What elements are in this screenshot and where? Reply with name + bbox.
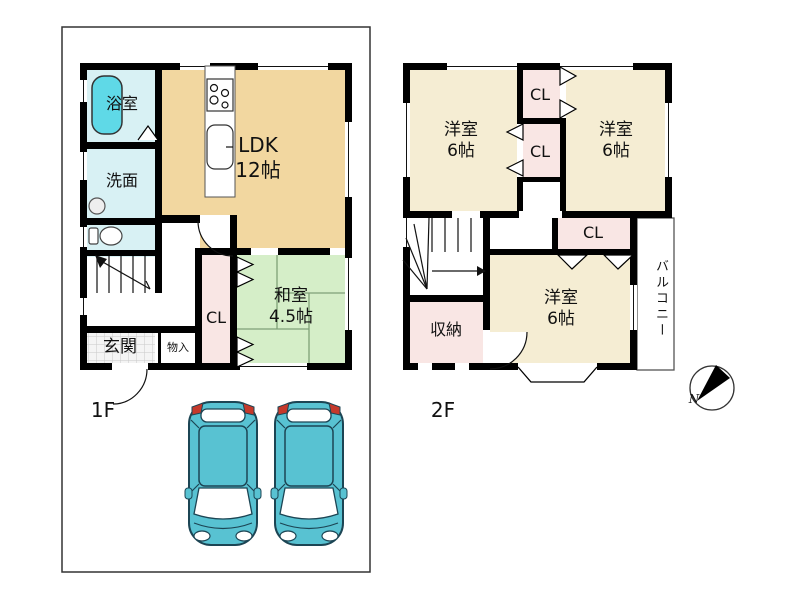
room-label-genkan: 玄関 <box>87 337 153 358</box>
room-label-ldk: LDK12帖 <box>200 133 316 183</box>
compass-north-label: N <box>686 392 702 407</box>
room-label-bedroom2: 洋室6帖 <box>562 120 670 163</box>
bedroom3-size: 6帖 <box>506 309 616 330</box>
bay-window <box>518 367 597 382</box>
room-label-storage-1f: 物入 <box>157 341 199 355</box>
room-label-bedroom3: 洋室6帖 <box>506 288 616 331</box>
bedroom2-name: 洋室 <box>599 120 633 140</box>
room-label-closet2-2f: CL <box>517 142 563 162</box>
floor1-label: 1F <box>83 398 123 423</box>
room-label-washitsu: 和室4.5帖 <box>237 286 345 329</box>
bedroom1-name: 洋室 <box>444 120 478 140</box>
washitsu-name: 和室 <box>274 286 308 306</box>
room-label-closet3-2f: CL <box>568 223 618 243</box>
room-label-closet1-2f: CL <box>517 85 563 105</box>
ldk-size: 12帖 <box>200 158 316 183</box>
car-icon-2 <box>271 402 347 545</box>
ldk-name: LDK <box>238 133 278 157</box>
car-icon-1 <box>185 402 261 545</box>
room-label-closet-1f: CL <box>198 308 234 328</box>
room-label-washroom: 洗面 <box>90 171 154 191</box>
floorplan-canvas: 浴室 洗面 LDK12帖 CL 和室4.5帖 玄関 物入 1F 洋室6帖 洋室6… <box>0 0 800 600</box>
washitsu-size: 4.5帖 <box>237 307 345 328</box>
bedroom3-name: 洋室 <box>544 288 578 308</box>
room-label-bath: 浴室 <box>90 94 154 114</box>
floorplan-graphics <box>0 0 800 600</box>
bedroom1-size: 6帖 <box>406 141 516 162</box>
room-label-storage-2f: 収納 <box>406 320 486 340</box>
sink-icon <box>89 198 105 214</box>
toilet-icon <box>89 227 122 245</box>
room-label-balcony: バルコニー <box>643 238 667 360</box>
bedroom2-size: 6帖 <box>562 141 670 162</box>
room-label-bedroom1: 洋室6帖 <box>406 120 516 163</box>
floor2-label: 2F <box>423 398 463 423</box>
